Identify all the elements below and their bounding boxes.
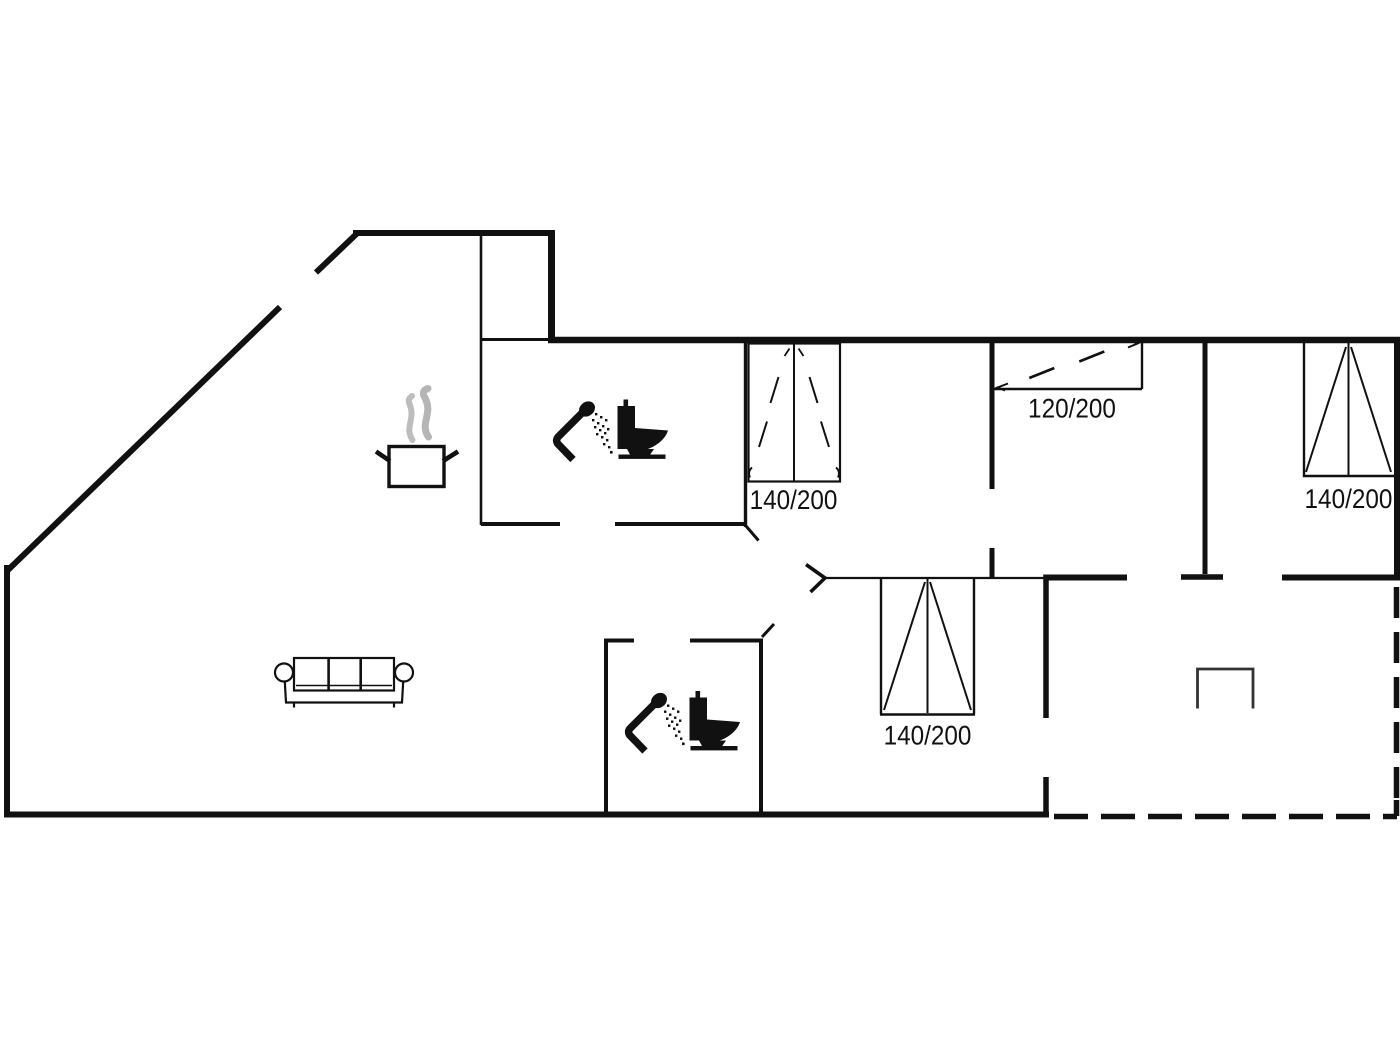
svg-text:140/200: 140/200 [750, 485, 838, 515]
svg-text:140/200: 140/200 [1305, 484, 1393, 514]
svg-text:120/200: 120/200 [1028, 394, 1116, 424]
svg-text:140/200: 140/200 [884, 721, 972, 751]
